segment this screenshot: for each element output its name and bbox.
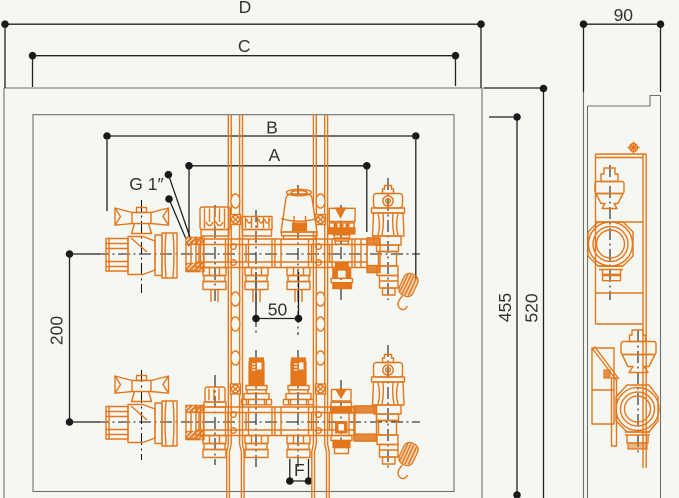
svg-text:F: F: [294, 460, 305, 480]
svg-text:90: 90: [614, 5, 634, 25]
svg-text:200: 200: [47, 316, 67, 345]
svg-text:A: A: [268, 145, 280, 165]
svg-text:B: B: [266, 118, 278, 138]
svg-text:C: C: [238, 36, 251, 56]
svg-text:D: D: [239, 0, 252, 17]
svg-text:50: 50: [268, 300, 288, 320]
svg-text:G 1″: G 1″: [129, 174, 163, 194]
svg-text:455: 455: [495, 293, 515, 322]
svg-text:520: 520: [522, 293, 542, 322]
